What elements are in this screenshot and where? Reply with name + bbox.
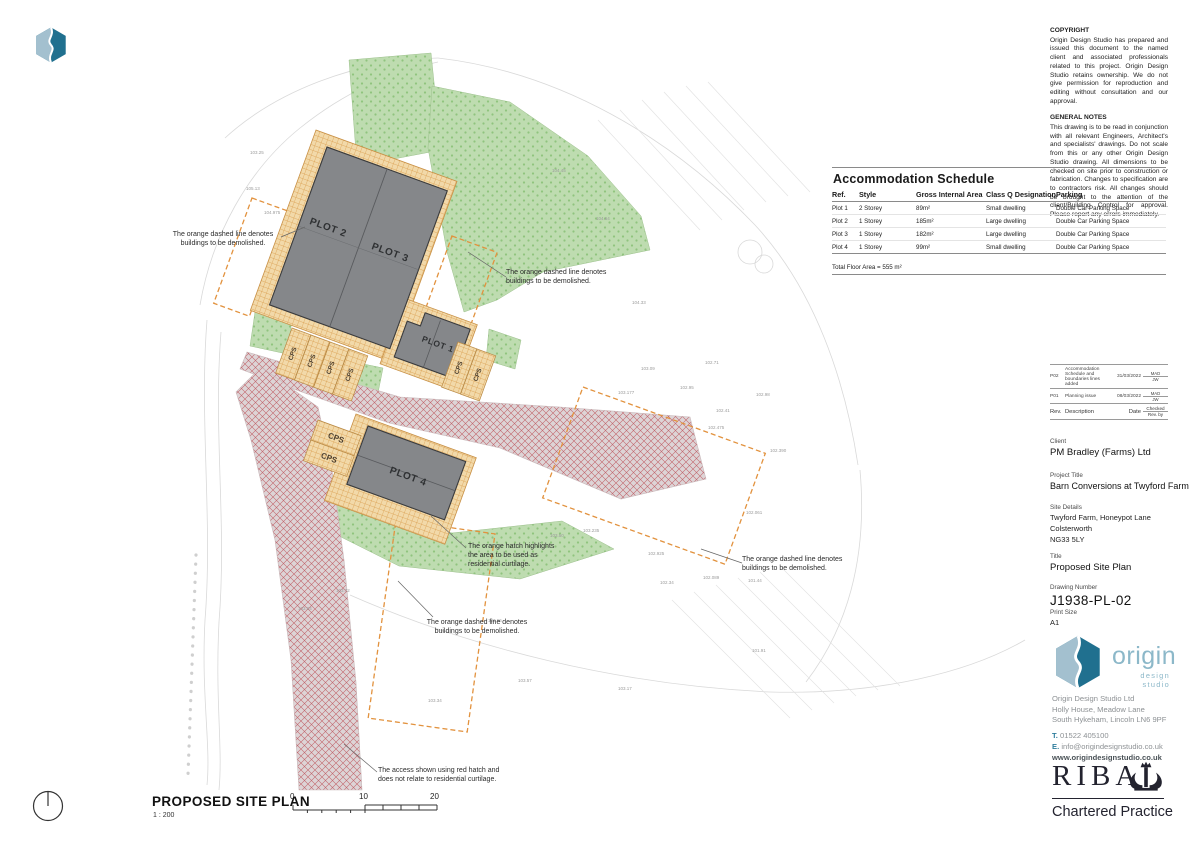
annotation-curtilage: The orange hatch highlights the area to …	[468, 542, 556, 569]
riba-subtitle: Chartered Practice	[1052, 804, 1173, 820]
schedule-header-row: Ref. Style Gross Internal Area Class Q D…	[832, 190, 1166, 202]
annotation-demolish-2: The orange dashed line denotes buildings…	[506, 268, 618, 286]
spot-level: 103.25	[250, 150, 264, 155]
site-address-line: Colsterworth	[1050, 524, 1170, 535]
revision-table: P02 Accommodation Schedule and boundarie…	[1050, 364, 1168, 420]
revision-header-row: Rev. Description Date CheckedRev. by	[1050, 403, 1168, 420]
email-line: E. info@origindesignstudio.co.uk	[1052, 741, 1163, 752]
drawing-number: J1938-PL-02	[1050, 593, 1170, 608]
studio-contact: T. 01522 405100 E. info@origindesignstud…	[1052, 730, 1163, 763]
spot-level: 102.41	[716, 408, 730, 413]
print-size-label: Print Size	[1050, 609, 1170, 616]
schedule-total: Total Floor Area = 555 m²	[832, 262, 1166, 275]
project-block: Project Title Barn Conversions at Twyfor…	[1050, 472, 1170, 491]
spot-level: 102.061	[746, 510, 762, 515]
project-title: Barn Conversions at Twyford Farm	[1050, 481, 1170, 491]
spot-level: 103.34	[428, 698, 442, 703]
riba-divider	[1052, 798, 1164, 799]
address-line: South Hykeham, Lincoln LN6 9PF	[1052, 715, 1166, 726]
studio-address: Origin Design Studio Ltd Holly House, Me…	[1052, 694, 1166, 726]
col-ref: Ref.	[832, 190, 859, 199]
annotation-demolish-3: The orange dashed line denotes buildings…	[742, 555, 850, 573]
client-name: PM Bradley (Farms) Ltd	[1050, 447, 1170, 458]
site-details-label: Site Details	[1050, 504, 1170, 511]
print-size-block: Print Size A1	[1050, 609, 1170, 629]
copyright-body: Origin Design Studio has prepared and is…	[1050, 37, 1168, 107]
annotation-demolish-1: The orange dashed line denotes buildings…	[166, 230, 280, 248]
schedule-row: Plot 41 Storey99m²Small dwellingDouble C…	[832, 241, 1166, 253]
col-parking: Parking	[1056, 190, 1166, 199]
copyright-title: COPYRIGHT	[1050, 27, 1168, 36]
col-style: Style	[859, 190, 916, 199]
schedule-row: Plot 12 Storey89m²Small dwellingDouble C…	[832, 202, 1166, 215]
project-label: Project Title	[1050, 472, 1170, 479]
spot-level: 102.95	[680, 385, 694, 390]
spot-level: 104.975	[264, 210, 280, 215]
title-block: Title Proposed Site Plan	[1050, 553, 1170, 573]
email-address: info@origindesignstudio.co.uk	[1061, 742, 1162, 751]
spot-levels-layer: 103.25105.13104.975104.45104.64104.33103…	[0, 0, 1200, 848]
general-notes-title: GENERAL NOTES	[1050, 114, 1168, 123]
col-designation: Class Q Designation	[986, 190, 1056, 199]
address-line: Holly House, Meadow Lane	[1052, 705, 1166, 716]
spot-level: 104.33	[632, 300, 646, 305]
studio-name: Origin Design Studio Ltd	[1052, 694, 1166, 705]
origin-cube-logo	[1052, 634, 1104, 690]
drawing-number-block: Drawing Number J1938-PL-02	[1050, 584, 1170, 608]
site-address-line: NG33 5LY	[1050, 535, 1170, 546]
spot-level: 102.390	[770, 448, 786, 453]
origin-tagline: design studio	[1112, 671, 1170, 689]
schedule-row: Plot 21 Storey185m²Large dwellingDouble …	[832, 215, 1166, 228]
spot-level: 103.94	[298, 606, 312, 611]
spot-level: 103.09	[641, 366, 655, 371]
spot-level: 103.17	[618, 686, 632, 691]
spot-level: 102.34	[660, 580, 674, 585]
annotation-demolish-4: The orange dashed line denotes buildings…	[421, 618, 533, 636]
spot-level: 102.089	[703, 575, 719, 580]
accommodation-schedule: Accommodation Schedule Ref. Style Gross …	[832, 167, 1166, 275]
spot-level: 101.91	[752, 648, 766, 653]
origin-wordmark: origin	[1112, 642, 1176, 671]
col-area: Gross Internal Area	[916, 190, 986, 199]
plan-scale: 1 : 200	[153, 812, 174, 819]
schedule-title: Accommodation Schedule	[833, 172, 1166, 186]
revision-row: P01 Planning issue 08/03/2022 MADJW	[1050, 388, 1168, 403]
spot-level: 103.235	[583, 528, 599, 533]
annotation-access: The access shown using red hatch and doe…	[378, 766, 500, 784]
spot-level: 102.925	[648, 551, 664, 556]
title-label: Title	[1050, 553, 1170, 560]
drawing-sheet: 103.25105.13104.975104.45104.64104.33103…	[0, 0, 1200, 848]
phone-line: T. 01522 405100	[1052, 730, 1163, 741]
spot-level: 102.98	[756, 392, 770, 397]
spot-level: 103.57	[518, 678, 532, 683]
schedule-row: Plot 31 Storey182m²Large dwellingDouble …	[832, 228, 1166, 241]
drawing-title: Proposed Site Plan	[1050, 562, 1170, 573]
site-address-line: Twyford Farm, Honeypot Lane	[1050, 513, 1170, 524]
email-label: E.	[1052, 742, 1059, 751]
client-block: Client PM Bradley (Farms) Ltd	[1050, 438, 1170, 458]
spot-level: 102.475	[708, 425, 724, 430]
phone-number: 01522 405100	[1060, 731, 1109, 740]
origin-cube-logo	[34, 26, 68, 64]
riba-crest-icon	[1128, 760, 1164, 796]
spot-level: 101.44	[748, 578, 762, 583]
print-size: A1	[1050, 618, 1170, 629]
phone-label: T.	[1052, 731, 1058, 740]
site-details-block: Site Details Twyford Farm, Honeypot Lane…	[1050, 504, 1170, 546]
spot-level: 103.72	[336, 588, 350, 593]
spot-level: 104.45	[552, 168, 566, 173]
client-label: Client	[1050, 438, 1170, 445]
plan-view-title: PROPOSED SITE PLAN	[152, 794, 310, 809]
spot-level: 105.13	[246, 186, 260, 191]
spot-level: 102.71	[705, 360, 719, 365]
spot-level: 103.50	[550, 533, 564, 538]
spot-level: 103.177	[618, 390, 634, 395]
revision-row: P02 Accommodation Schedule and boundarie…	[1050, 364, 1168, 388]
spot-level: 104.64	[596, 216, 610, 221]
drawing-number-label: Drawing Number	[1050, 584, 1170, 591]
